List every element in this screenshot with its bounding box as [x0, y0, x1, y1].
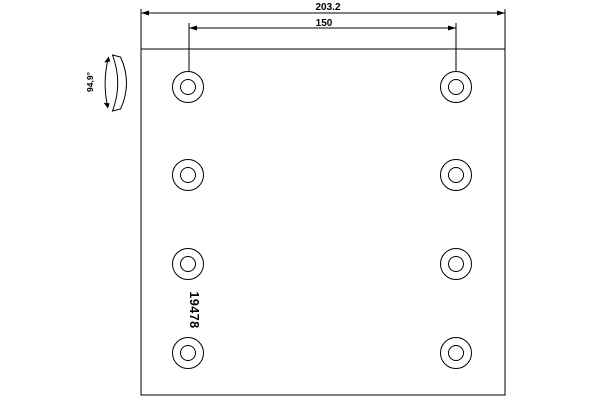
rivet-hole-inner — [449, 80, 464, 95]
rivet-hole — [441, 338, 472, 369]
arrowhead-right-icon — [448, 26, 456, 31]
rivet-hole-outer — [441, 338, 472, 369]
rivet-hole-inner — [449, 168, 464, 183]
side-profile-symbol: 94,9° — [85, 55, 127, 111]
rivet-hole-outer — [441, 160, 472, 191]
rivet-hole-inner — [449, 346, 464, 361]
brake-lining-technical-drawing: 203.2 150 94,9° — [0, 0, 600, 400]
part-number-label: 19478 — [187, 291, 201, 328]
rivet-hole-inner — [181, 168, 196, 183]
hole-spacing-label: 150 — [316, 18, 333, 29]
arc-arrowhead-top-icon — [104, 57, 110, 63]
dimension-hole-spacing: 150 — [189, 18, 456, 72]
arc-arrowhead-bottom-icon — [104, 103, 110, 109]
arc-angle-label: 94,9° — [85, 71, 95, 92]
rivet-hole-outer — [441, 249, 472, 280]
rivet-hole-inner — [181, 257, 196, 272]
rivet-holes — [173, 72, 472, 369]
rivet-hole — [441, 72, 472, 103]
rivet-hole — [441, 160, 472, 191]
rivet-hole-inner — [181, 346, 196, 361]
overall-width-label: 203.2 — [315, 2, 340, 13]
arc-dimension-line — [105, 59, 108, 106]
rivet-hole — [441, 249, 472, 280]
rivet-hole-outer — [173, 338, 204, 369]
rivet-hole — [173, 160, 204, 191]
rivet-hole-outer — [173, 72, 204, 103]
rivet-hole-inner — [181, 80, 196, 95]
arrowhead-right-icon — [497, 11, 505, 16]
rivet-hole — [173, 249, 204, 280]
rivet-hole-inner — [449, 257, 464, 272]
rivet-hole-outer — [173, 249, 204, 280]
drawing-svg: 203.2 150 94,9° — [0, 0, 600, 400]
arrowhead-left-icon — [189, 26, 197, 31]
rivet-hole — [173, 338, 204, 369]
rivet-hole — [173, 72, 204, 103]
rivet-hole-outer — [441, 72, 472, 103]
arrowhead-left-icon — [141, 11, 149, 16]
lining-profile-crescent — [113, 55, 127, 111]
rivet-hole-outer — [173, 160, 204, 191]
